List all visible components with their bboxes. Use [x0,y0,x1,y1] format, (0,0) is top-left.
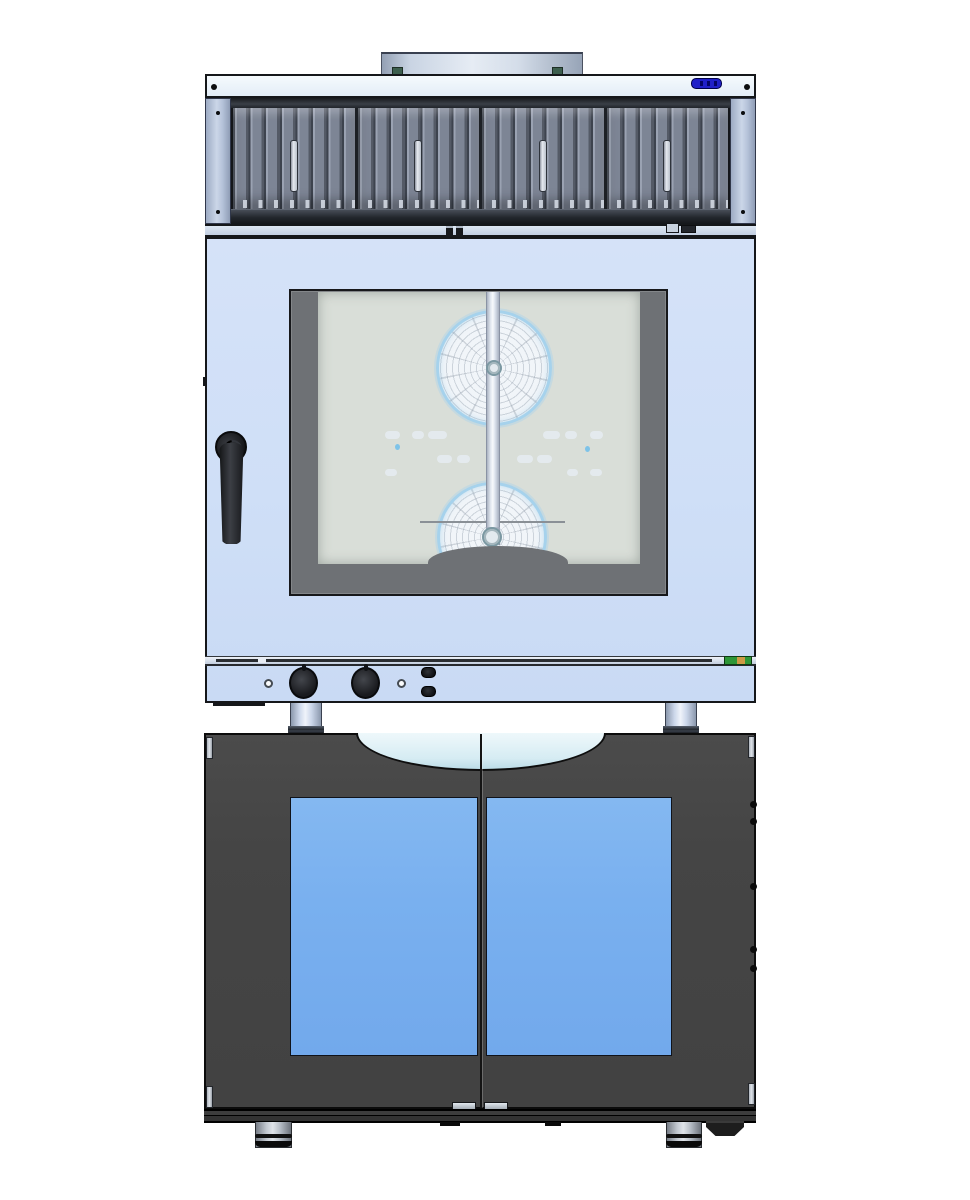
oven-leg-left [290,703,322,726]
base-notch [440,1122,460,1126]
vent-slot [543,431,560,439]
vent-slot [537,455,552,463]
hood-rail-top [231,98,730,108]
base-bracket [706,1121,744,1136]
grease-filter-panel [607,108,729,209]
cabinet-door-glass-right [486,797,672,1056]
vent-slot [517,455,533,463]
screw-icon [216,111,220,115]
rating-label-segment [737,657,745,664]
indicator-light-left [264,679,273,688]
band-clip [446,226,453,237]
band-fastener [681,225,696,233]
function-button-top [421,667,436,678]
function-button-bottom [421,686,436,697]
oven-stack-render [0,0,970,1200]
condensation-speck [395,444,400,450]
screw-icon [741,210,745,214]
grease-filter-panel [482,108,604,209]
vent-slot [457,455,470,463]
timer-knob [351,667,380,699]
strip-slot [216,659,712,662]
screw-icon [741,111,745,115]
oven-base-step [213,701,265,706]
temperature-knob [289,667,318,699]
hinge-bottom-left [206,1086,213,1108]
hood-pillar-right [730,98,756,224]
oven-door-handle [219,443,244,545]
screw-icon [216,210,220,214]
oven-leg-right [665,703,697,726]
screw-icon [744,84,750,90]
vent-slot [590,469,602,476]
hinge-knuckle [750,965,757,972]
fan-hub-bottom [482,527,502,547]
filter-bank [231,108,730,209]
hood-pillar-left [205,98,231,224]
condensation-speck [585,446,590,452]
vent-slot [428,431,447,439]
hinge-bottom-right [748,1083,755,1105]
indicator-light-right [397,679,406,688]
cabinet-foot-right [666,1122,702,1148]
band-fastener [666,223,679,233]
filter-handle [539,140,547,192]
vent-slot [412,431,424,439]
strip-slot-gap [258,658,266,663]
screw-icon [211,84,217,90]
base-notch [545,1122,561,1126]
vent-slot [590,431,603,439]
fan-hub-top [486,360,502,376]
divider-highlight [482,734,483,1108]
filter-handle [663,140,671,192]
vent-slot [567,469,578,476]
center-probe-tube [486,292,500,545]
vent-slot [385,469,397,476]
hood-top-panel [205,74,756,98]
hinge-knuckle [750,818,757,825]
cabinet-door-glass-left [290,797,478,1056]
mini-digital-display [691,78,722,89]
hood-rail-bottom [231,209,730,224]
hinge-knuckle [750,801,757,808]
grease-filter-panel [233,108,355,209]
cabinet-foot-left [255,1122,292,1148]
vent-slot [437,455,452,463]
filter-handle [414,140,422,192]
door-hinge-mark [203,377,207,386]
hinge-top-left [206,737,213,759]
hinge-top-right [748,736,755,758]
band-clip [456,226,463,237]
hinge-knuckle [750,946,757,953]
grease-filter-panel [358,108,480,209]
cabinet-base-rail [204,1109,756,1123]
filter-handle [290,140,298,192]
vent-slot [565,431,577,439]
oven-cavity-view [318,292,640,564]
vent-slot [385,431,400,439]
hinge-knuckle [750,883,757,890]
